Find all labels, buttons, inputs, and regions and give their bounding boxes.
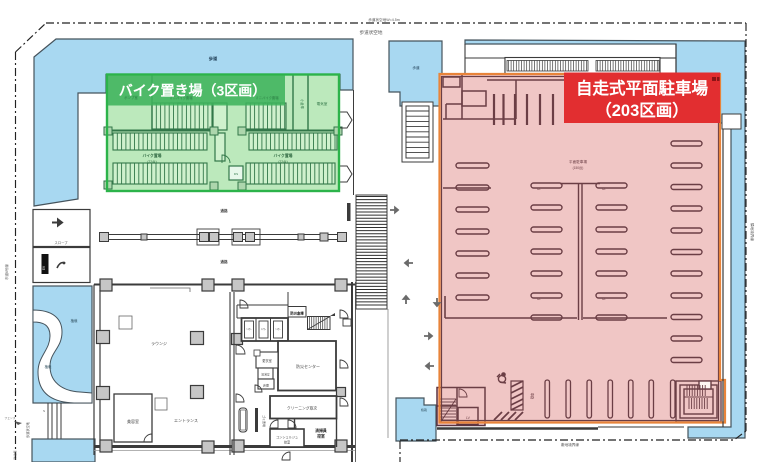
svg-text:（203区画）: （203区画） — [595, 100, 689, 120]
svg-text:S: S — [43, 409, 45, 413]
svg-text:通路: 通路 — [220, 208, 228, 213]
svg-text:ｼｬﾜｰ: ｼｬﾜｰ — [275, 328, 281, 331]
svg-text:控室: 控室 — [284, 440, 290, 445]
svg-text:コンシェルジュ: コンシェルジュ — [276, 436, 298, 440]
svg-text:歩道状空地: 歩道状空地 — [25, 421, 30, 438]
svg-text:市道6号線: 市道6号線 — [4, 264, 9, 280]
svg-text:清掃員: 清掃員 — [314, 428, 327, 433]
svg-text:歩道: 歩道 — [209, 55, 218, 62]
svg-text:歩道状空地W=4.5m: 歩道状空地W=4.5m — [368, 17, 399, 22]
svg-text:エントランス: エントランス — [174, 417, 198, 423]
svg-text:ラウンジ: ラウンジ — [151, 340, 167, 346]
svg-text:通路: 通路 — [220, 259, 228, 264]
svg-text:スロープ: スロープ — [54, 240, 68, 245]
svg-text:防災センター: 防災センター — [296, 363, 320, 369]
svg-text:防油堤: 防油堤 — [12, 450, 17, 459]
svg-text:バイク置き場（3区画）: バイク置き場（3区画） — [119, 83, 267, 99]
svg-text:自走式平面駐車場: 自走式平面駐車場 — [576, 78, 709, 98]
svg-text:歩道状空地: 歩道状空地 — [360, 29, 383, 36]
svg-text:歩道: 歩道 — [412, 65, 420, 70]
svg-text:フェンス: フェンス — [4, 416, 15, 420]
svg-text:植栽: 植栽 — [71, 318, 78, 323]
svg-text:敷地境界線: 敷地境界線 — [561, 442, 579, 447]
svg-text:更衣室: 更衣室 — [262, 358, 272, 363]
svg-text:倉庫: 倉庫 — [263, 383, 269, 388]
svg-text:湯沸室: 湯沸室 — [261, 373, 270, 377]
svg-text:ゴミ置場: ゴミ置場 — [262, 415, 267, 427]
svg-text:クリーニング取次: クリーニング取次 — [287, 406, 318, 411]
svg-text:隣地境界線: 隣地境界線 — [750, 223, 755, 241]
svg-text:控室: 控室 — [317, 434, 325, 439]
svg-text:防災倉庫: 防災倉庫 — [290, 311, 304, 316]
svg-text:美容室: 美容室 — [127, 418, 139, 424]
svg-text:ｼｬﾜｰ: ｼｬﾜｰ — [246, 328, 252, 331]
svg-text:植栽: 植栽 — [45, 364, 52, 369]
svg-text:植栽: 植栽 — [421, 407, 427, 412]
svg-text:ｼｬﾜｰ: ｼｬﾜｰ — [261, 328, 267, 331]
